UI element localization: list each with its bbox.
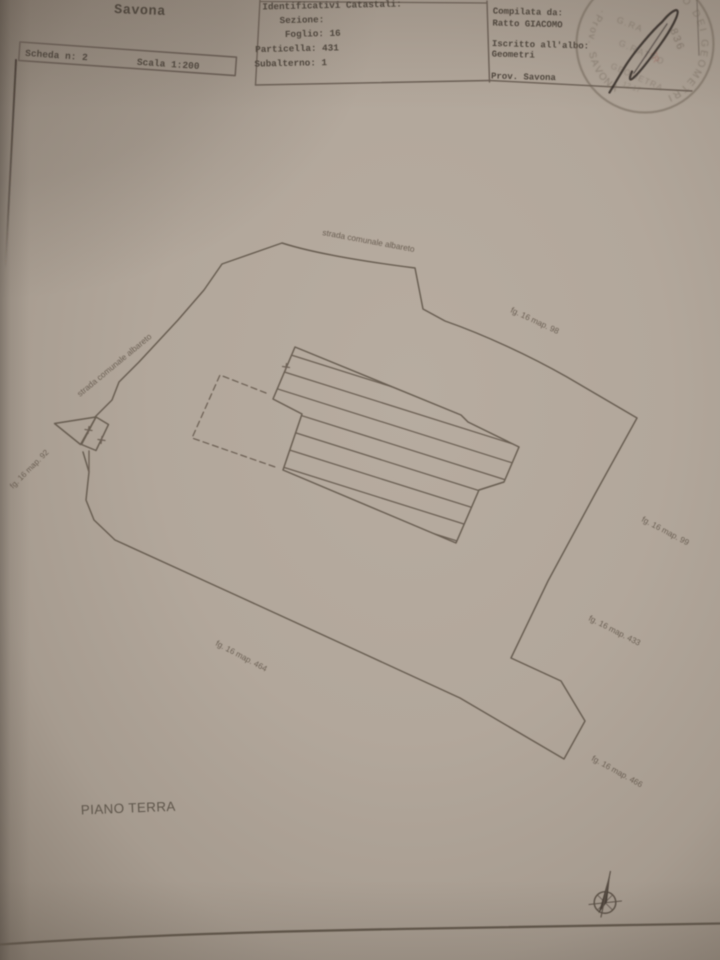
svg-text:Savona: Savona bbox=[114, 3, 166, 20]
svg-text:.: . bbox=[585, 41, 596, 44]
svg-text:Ratto GIACOMO: Ratto GIACOMO bbox=[492, 19, 563, 31]
svg-text:Subalterno: 1: Subalterno: 1 bbox=[254, 57, 327, 70]
svg-text:Prov. Savona: Prov. Savona bbox=[491, 71, 557, 83]
svg-text:Particella: 431: Particella: 431 bbox=[255, 42, 339, 55]
svg-text:Foglio: 16: Foglio: 16 bbox=[285, 28, 341, 40]
svg-text:Compilata da:: Compilata da: bbox=[493, 7, 563, 19]
svg-text:Sezione:: Sezione: bbox=[279, 14, 324, 26]
svg-text:Geometri: Geometri bbox=[491, 49, 535, 60]
